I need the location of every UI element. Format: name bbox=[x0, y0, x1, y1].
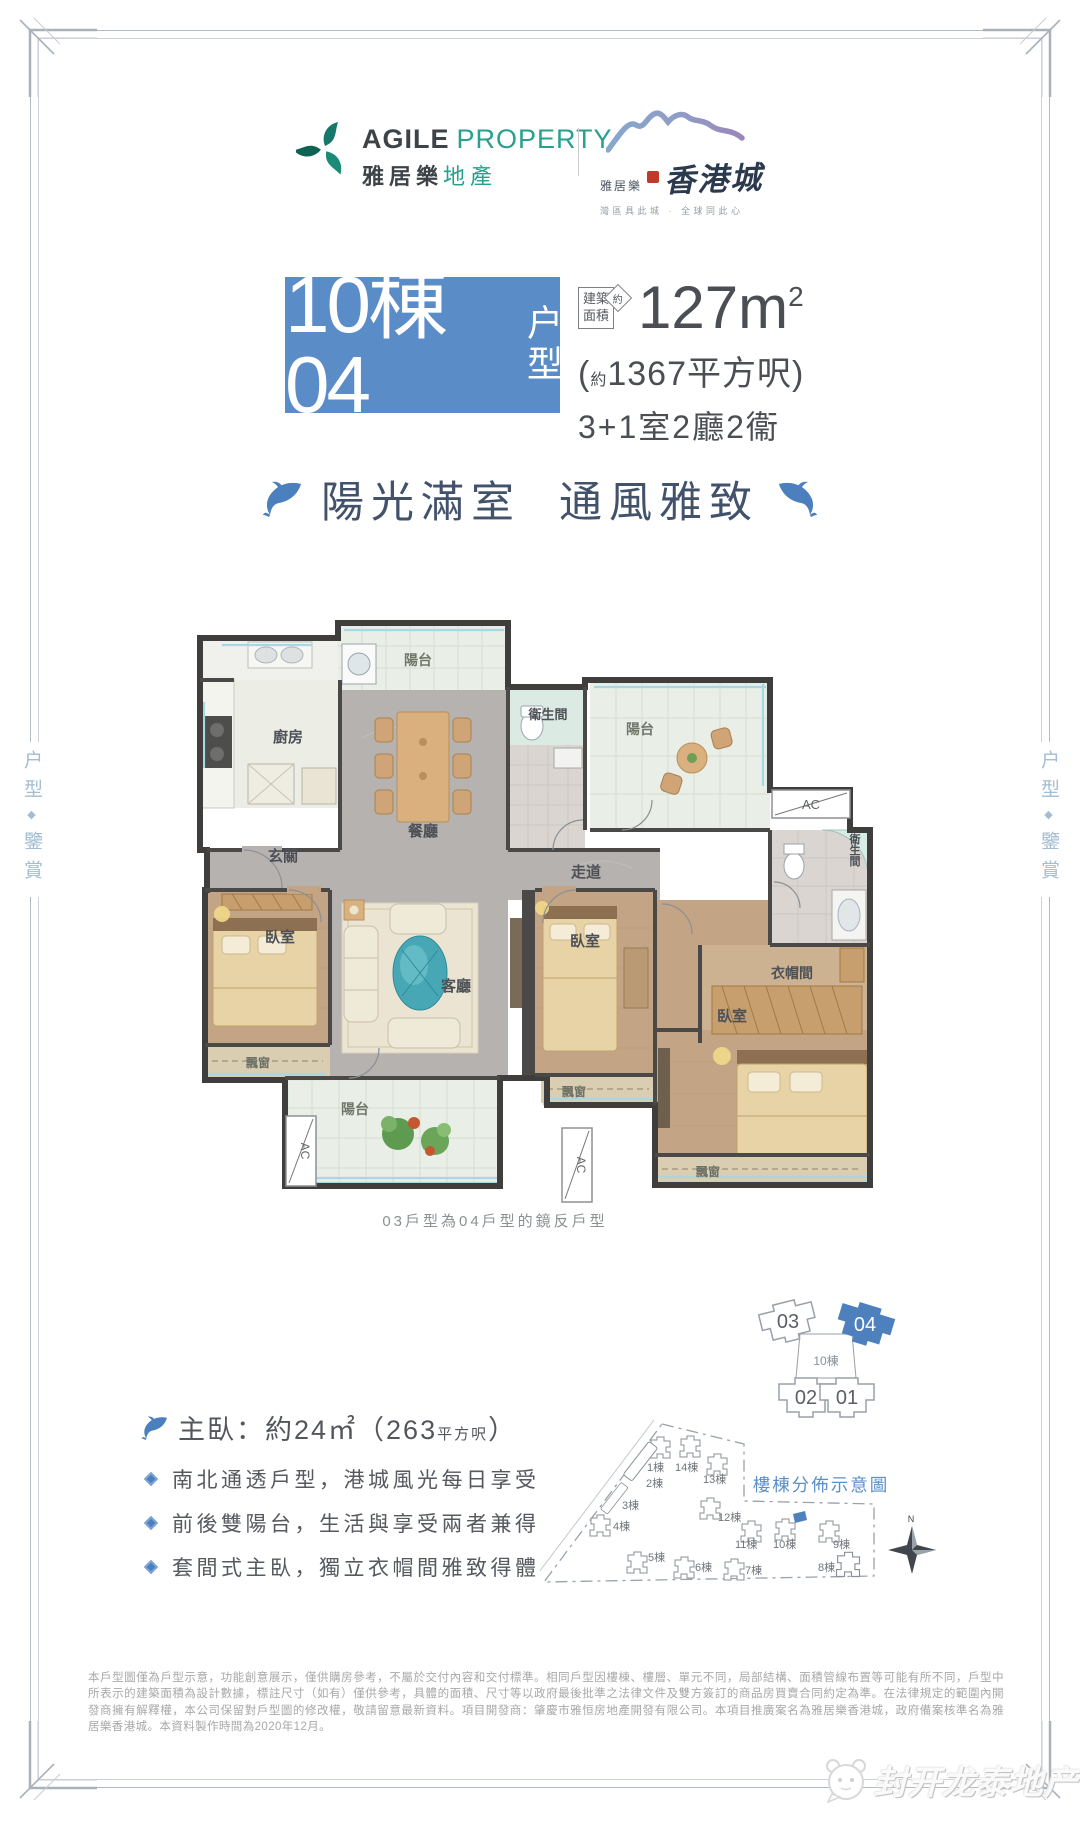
seal-icon bbox=[647, 171, 659, 183]
master-area-text: 主臥：約24㎡（263平方呎） bbox=[178, 1408, 517, 1447]
compass-icon: N bbox=[888, 1514, 936, 1574]
compass-north-label: N bbox=[908, 1514, 915, 1524]
tagline-text: 陽光滿室 通風雅致 bbox=[321, 468, 759, 530]
unit-suffix: 户型 bbox=[524, 304, 560, 386]
building-label-5: 5棟 bbox=[648, 1550, 665, 1564]
room-label-living: 客廳 bbox=[440, 977, 471, 995]
corner-ornament-top-right bbox=[982, 14, 1066, 98]
watermark-text: 封开龙泰地产 bbox=[874, 1756, 1078, 1804]
unit-key-block-label: 10棟 bbox=[813, 1353, 838, 1368]
agile-logo-text: AGILEPROPERTY 雅居樂地產 bbox=[362, 124, 613, 191]
bay-window-label-left: 飄窗 bbox=[245, 1055, 270, 1070]
paren-open: ( bbox=[578, 355, 590, 393]
corner-ornament-bottom-left bbox=[14, 1720, 98, 1804]
site-plan-title: 樓棟分佈示意圖 bbox=[753, 1475, 890, 1495]
area-number: 127m bbox=[638, 274, 788, 341]
area-hk: (約1367平方呎) bbox=[578, 346, 804, 395]
room-label-bedroom-mid: 臥室 bbox=[570, 932, 600, 950]
disclaimer-text: 本戶型圖僅為戶型示意，功能創意展示，僅供購房參考，不屬於交付內容和交付標準。相同… bbox=[88, 1670, 1004, 1735]
building-label-4: 4棟 bbox=[613, 1519, 630, 1533]
feature-item: 套間式主臥，獨立衣帽間雅致得體 bbox=[146, 1552, 540, 1582]
feature-text: 南北通透戶型，港城風光每日享受 bbox=[172, 1464, 540, 1494]
agile-name-en-bold: AGILE bbox=[362, 124, 450, 154]
room-label-balcony-top: 陽台 bbox=[404, 652, 432, 668]
building-label-1: 1棟 bbox=[647, 1460, 664, 1474]
hkc-logo: 雅居樂 香港城 灣區具此城 · 全球同此心 bbox=[600, 108, 780, 217]
room-label-bath-top: 衛生間 bbox=[527, 707, 567, 722]
master-area-suffix: ） bbox=[488, 1415, 517, 1445]
unit-key-label-03: 03 bbox=[777, 1311, 799, 1333]
area-hk-value: 1367平方呎) bbox=[607, 355, 804, 393]
layout-text: 3+1室2廳2衞 bbox=[578, 402, 804, 448]
master-area-prefix: 主臥：約24㎡（263 bbox=[178, 1415, 437, 1445]
side-label-right: 户型◆鑒賞 bbox=[1037, 742, 1060, 897]
room-label-bath-master: 衛生間 bbox=[848, 832, 862, 867]
room-label-kitchen: 廚房 bbox=[273, 728, 303, 746]
building-label-8: 8棟 bbox=[818, 1560, 835, 1574]
dolphin-icon bbox=[777, 481, 817, 517]
agile-name-cn-bold: 雅居樂 bbox=[362, 164, 443, 189]
header-divider bbox=[578, 128, 579, 176]
room-label-dining: 餐廳 bbox=[408, 822, 438, 840]
flyer-page: 户型◆鑒賞 户型◆鑒賞 AGILEPROPERTY 雅居樂地產 bbox=[0, 0, 1080, 1834]
feature-item: 前後雙陽台，生活與享受兩者兼得 bbox=[146, 1508, 540, 1538]
building-label-7: 7棟 bbox=[745, 1563, 762, 1577]
hkc-name: 香港城 bbox=[663, 152, 764, 200]
unit-key-diagram: 03 04 02 01 10棟 bbox=[742, 1284, 910, 1430]
approx-small: 約 bbox=[590, 372, 607, 389]
diamond-icon: ◆ bbox=[1042, 808, 1054, 831]
building-label-11: 11棟 bbox=[735, 1537, 757, 1551]
side-label-left: 户型◆鑒賞 bbox=[20, 742, 43, 897]
unit-code: 10棟04 bbox=[285, 265, 514, 425]
master-info: 主臥：約24㎡（263平方呎） bbox=[140, 1408, 517, 1447]
ac-label: AC bbox=[802, 797, 820, 812]
agile-logo-icon bbox=[296, 118, 352, 178]
approx-char: 約 bbox=[613, 291, 623, 306]
unit-key-label-04: 04 bbox=[854, 1314, 876, 1336]
room-label-bedroom-left: 臥室 bbox=[265, 928, 295, 946]
side-label-text-bottom: 鑒賞 bbox=[21, 831, 42, 889]
room-label-balcony-right: 陽台 bbox=[626, 721, 654, 737]
side-label-text-top: 户型 bbox=[21, 750, 42, 808]
bay-window-label-mid: 飄窗 bbox=[561, 1084, 586, 1099]
feature-item: 南北通透戶型，港城風光每日享受 bbox=[146, 1464, 540, 1494]
corner-ornament-top-left bbox=[14, 14, 98, 98]
room-label-entry: 玄關 bbox=[268, 847, 298, 865]
diamond-bullet-icon bbox=[144, 1472, 158, 1486]
highlighted-unit-marker bbox=[793, 1511, 807, 1523]
building-label-10: 10棟 bbox=[773, 1537, 796, 1551]
building-label-2: 2棟 bbox=[646, 1476, 663, 1490]
site-plan: 1棟 2棟 3棟 4棟 5棟 6棟 7棟 8棟 9棟 10棟 11棟 12棟 1… bbox=[540, 1418, 1010, 1666]
mountain-icon bbox=[606, 108, 746, 154]
mascot-icon bbox=[820, 1756, 872, 1804]
side-label-text-bottom: 鑒賞 bbox=[1038, 831, 1059, 889]
master-area-unit: 平方呎 bbox=[437, 1426, 488, 1443]
building-label-14: 14棟 bbox=[675, 1460, 698, 1474]
hkc-prefix: 雅居樂 bbox=[600, 177, 642, 199]
diamond-bullet-icon bbox=[144, 1516, 158, 1530]
spec-block: 建築 面積 約 127m2 (約1367平方呎) 3+1室2廳2衞 bbox=[578, 278, 804, 448]
building-label-9: 9棟 bbox=[833, 1537, 850, 1551]
tagline: 陽光滿室 通風雅致 bbox=[0, 468, 1080, 530]
feature-text: 前後雙陽台，生活與享受兩者兼得 bbox=[172, 1508, 540, 1538]
ac-label: AC bbox=[298, 1143, 312, 1160]
ac-label: AC bbox=[574, 1157, 588, 1174]
unit-key-label-02: 02 bbox=[795, 1387, 817, 1409]
diamond-icon: ◆ bbox=[25, 808, 37, 831]
watermark: 封开龙泰地产 bbox=[820, 1756, 1078, 1804]
hkc-slogan: 灣區具此城 · 全球同此心 bbox=[600, 204, 780, 217]
building-label-13: 13棟 bbox=[703, 1472, 726, 1486]
area-value: 127m2 bbox=[638, 278, 804, 338]
area-superscript: 2 bbox=[788, 281, 804, 312]
room-label-bedroom-master: 臥室 bbox=[717, 1007, 747, 1025]
bay-window-label-master: 飄窗 bbox=[695, 1164, 720, 1179]
room-label-closet: 衣帽間 bbox=[771, 965, 813, 981]
agile-name-cn-light: 地產 bbox=[443, 164, 497, 189]
unit-title-box: 10棟04 户型 bbox=[285, 277, 560, 413]
agile-name-en-light: PROPERTY bbox=[457, 124, 613, 154]
room-label-balcony-bottom: 陽台 bbox=[341, 1101, 369, 1117]
floor-plan-caption: 03戶型為04戶型的鏡反戶型 bbox=[192, 1210, 798, 1231]
building-label-6: 6棟 bbox=[695, 1560, 712, 1574]
diamond-bullet-icon bbox=[144, 1560, 158, 1574]
feature-list: 南北通透戶型，港城風光每日享受 前後雙陽台，生活與享受兩者兼得 套間式主臥，獨立… bbox=[146, 1464, 540, 1596]
feature-text: 套間式主臥，獨立衣帽間雅致得體 bbox=[172, 1552, 540, 1582]
side-label-text-top: 户型 bbox=[1038, 750, 1059, 808]
room-label-hallway: 走道 bbox=[571, 863, 601, 881]
building-label-12: 12棟 bbox=[718, 1510, 741, 1524]
building-label-3: 3棟 bbox=[622, 1498, 639, 1512]
unit-key-label-01: 01 bbox=[836, 1387, 858, 1409]
dolphin-icon bbox=[263, 481, 303, 517]
dolphin-icon bbox=[140, 1416, 170, 1440]
area-badge-line2: 面積 bbox=[583, 308, 609, 325]
floor-plan: AC AC AC 陽台 廚房 衛生間 陽台 餐廳 玄關 走道 臥室 客廳 臥室 … bbox=[192, 618, 892, 1208]
